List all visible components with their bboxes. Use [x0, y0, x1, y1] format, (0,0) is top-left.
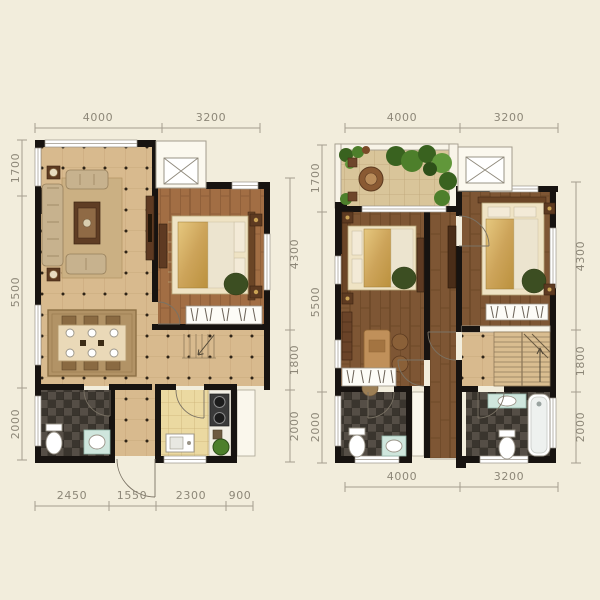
- first-floor-plan: 4000 3200 1700 5500 2000 4300 1800 2000 …: [9, 111, 301, 511]
- plant-icon: [439, 172, 457, 190]
- dim-label: 2000: [9, 409, 22, 439]
- dim-label: 2000: [309, 412, 322, 442]
- dim-label: 4300: [288, 239, 301, 269]
- dim-label: 3200: [494, 111, 524, 124]
- dining-chair: [62, 360, 76, 370]
- toilet-icon: [499, 430, 515, 459]
- bathtub-icon: [528, 394, 550, 456]
- elevator-shaft-2: [458, 147, 512, 191]
- dim-label: 900: [229, 489, 252, 502]
- dim-label: 5500: [9, 277, 22, 307]
- dim-label: 4000: [387, 111, 417, 124]
- staircase-icon: [494, 332, 550, 386]
- plant-icon: [423, 162, 437, 176]
- elevator-shaft: [156, 141, 206, 188]
- dim-label: 5500: [309, 287, 322, 317]
- dining-chair: [84, 360, 98, 370]
- double-bed-2: [478, 197, 555, 295]
- lamp-icon: [50, 271, 58, 279]
- dim-label: 1800: [288, 345, 301, 375]
- dim-label: 2450: [57, 489, 87, 502]
- dim-label: 3200: [196, 111, 226, 124]
- dining-chair: [106, 316, 120, 326]
- bathroom2-vanity: [488, 394, 526, 408]
- kitchen-sink-icon: [166, 434, 194, 452]
- hall-cabinet: [448, 226, 456, 288]
- floor-plan-image: 4000 3200 1700 5500 2000 4300 1800 2000 …: [0, 0, 600, 600]
- dim-label: 2000: [288, 411, 301, 441]
- wardrobe-icon: [486, 304, 548, 320]
- dim-label: 3200: [494, 470, 524, 483]
- terrace-stool: [348, 158, 357, 167]
- double-bed-1: [342, 212, 416, 304]
- sink-icon: [382, 436, 406, 456]
- dining-chair: [106, 360, 120, 370]
- floor-plan-drawing: 4000 3200 1700 5500 2000 4300 1800 2000 …: [0, 0, 600, 600]
- lamp-icon: [50, 169, 58, 177]
- bookshelf-icon: [342, 312, 352, 360]
- dim-label: 1550: [117, 489, 147, 502]
- dining-set: [48, 310, 136, 376]
- tv-cabinet: [146, 196, 154, 260]
- plant-icon: [352, 146, 364, 158]
- plant-pot: [362, 146, 370, 154]
- dim-label: 4000: [83, 111, 113, 124]
- sofa-main: [42, 184, 63, 266]
- terrace-stool: [348, 192, 357, 201]
- wardrobe-icon: [342, 368, 396, 386]
- dim-label: 1700: [309, 163, 322, 193]
- dresser: [159, 224, 167, 268]
- toilet-icon: [349, 428, 365, 457]
- ac-ledge: [237, 390, 255, 456]
- dim-label: 4000: [387, 470, 417, 483]
- sofa-loveseat: [66, 170, 108, 189]
- dim-label: 4300: [574, 241, 587, 271]
- toilet-icon: [46, 424, 62, 454]
- desk-chair: [392, 334, 408, 350]
- duct: [412, 392, 424, 456]
- dining-chair: [84, 316, 98, 326]
- dim-label: 2300: [176, 489, 206, 502]
- plant-icon: [434, 190, 450, 206]
- dining-chair: [62, 316, 76, 326]
- double-bed: [168, 212, 262, 300]
- dim-label: 1700: [9, 153, 22, 183]
- plant-icon: [213, 439, 229, 455]
- wardrobe-icon: [186, 306, 262, 324]
- dim-label: 1800: [574, 346, 587, 376]
- bathroom-vanity: [84, 430, 110, 454]
- tv-cabinet: [417, 238, 424, 292]
- second-floor-plan: 4000 3200 1700 5500 2000 4300 1800 2000 …: [309, 111, 587, 492]
- dim-label: 2000: [574, 412, 587, 442]
